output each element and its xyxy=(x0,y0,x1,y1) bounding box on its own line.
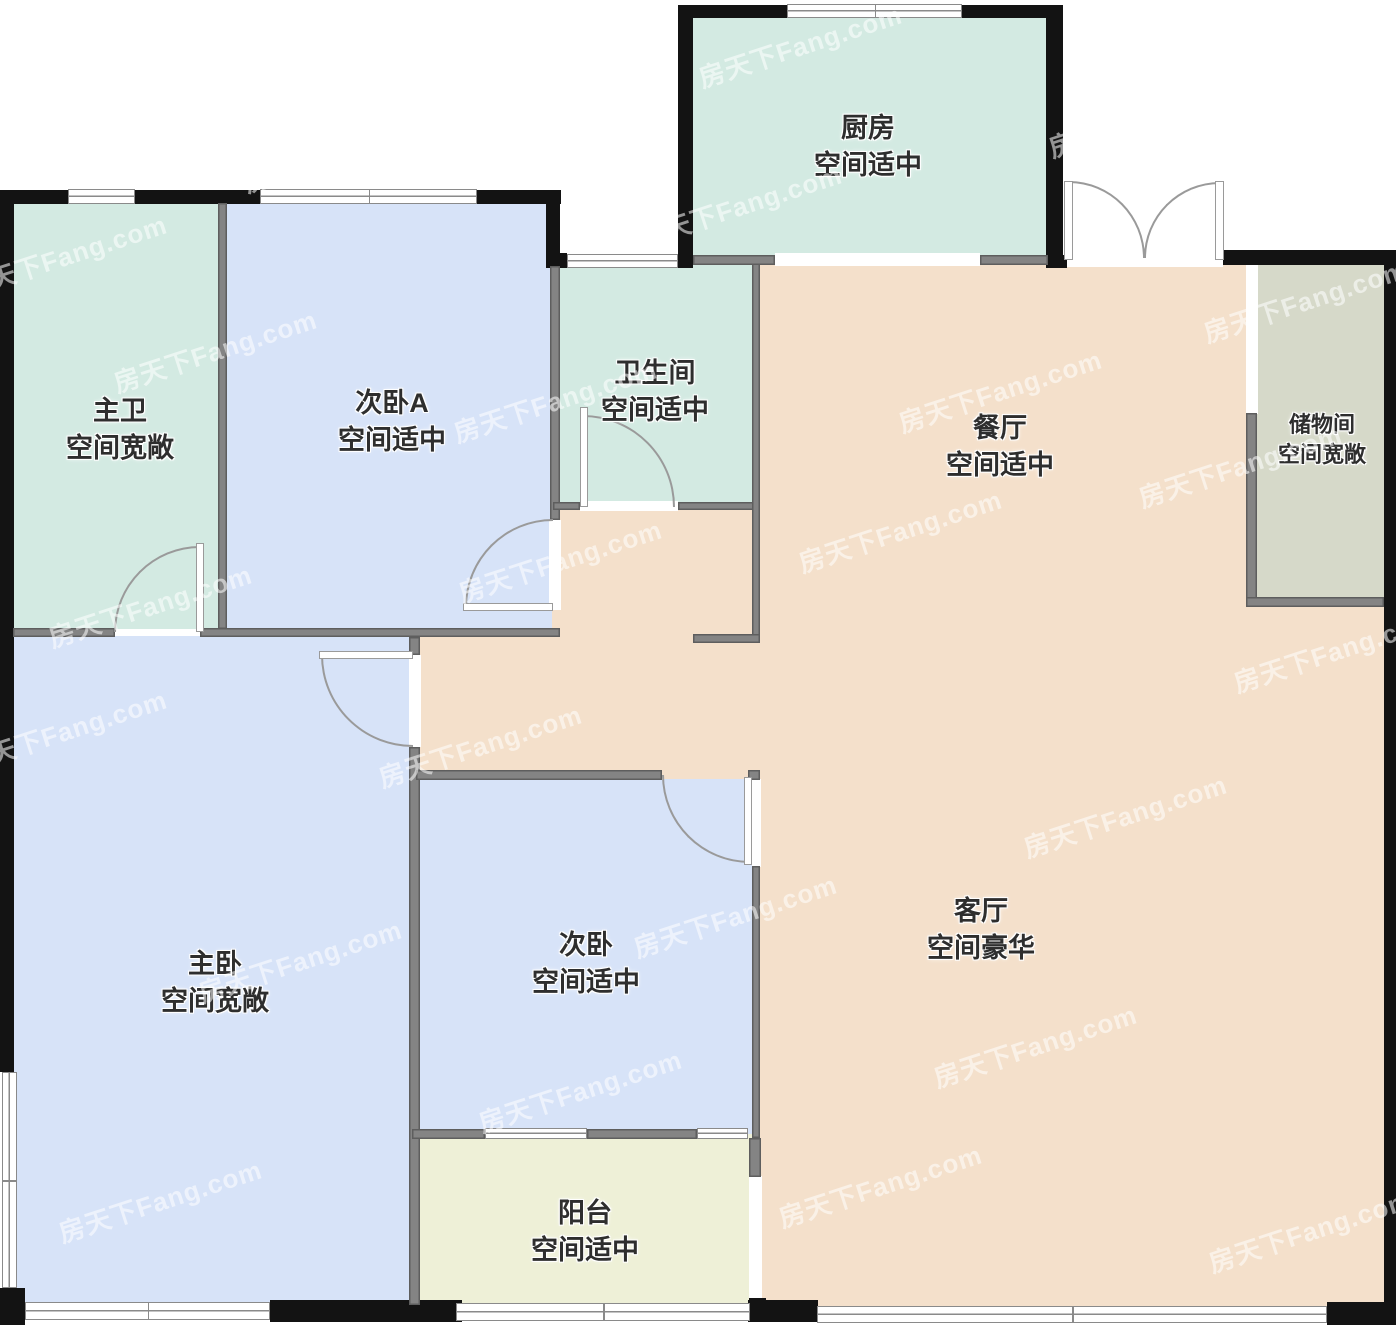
window-master-bottom xyxy=(25,1302,270,1320)
wall-block-bottom-right xyxy=(200,628,560,637)
door-leaf-master-bedroom xyxy=(319,651,413,659)
wall-kitchen-bottom-right xyxy=(980,255,1048,265)
wall-ext-top-1 xyxy=(5,190,68,204)
wall-ext-top-2 xyxy=(135,190,260,204)
room-size: 空间豪华 xyxy=(927,930,1035,967)
window-bathroom-top xyxy=(567,254,678,268)
floor-plan: 厨房 空间适中 主卫 空间宽敞 次卧A 空间适中 卫生间 空间适中 餐厅 空间适… xyxy=(0,0,1400,1325)
room-label-bedroom: 次卧 空间适中 xyxy=(532,927,640,1001)
door-arc-entry-right xyxy=(1144,182,1220,258)
opening-storage xyxy=(1246,264,1258,414)
opening-bedroom-right xyxy=(752,779,761,867)
room-label-master-bath: 主卫 空间宽敞 xyxy=(66,393,174,467)
wall-ext-left-corner xyxy=(0,1288,25,1325)
wall-balcony-right-top xyxy=(749,1138,761,1177)
wall-hall-stub xyxy=(693,634,760,643)
room-size: 空间宽敞 xyxy=(66,430,174,467)
room-size: 空间适中 xyxy=(946,447,1054,484)
window-master-left xyxy=(2,1072,17,1288)
wall-ext-left xyxy=(0,190,14,1072)
room-size: 空间适中 xyxy=(338,422,446,459)
window-balcony-bottom xyxy=(456,1303,750,1321)
window-bedroom-balcony-2 xyxy=(697,1128,748,1139)
wall-master-right xyxy=(409,747,420,1305)
wall-ext-right xyxy=(1384,250,1396,1325)
wall-kitchen-bottom-left xyxy=(693,255,775,265)
room-label-balcony: 阳台 空间适中 xyxy=(531,1195,639,1269)
wall-bedroom-balcony-1 xyxy=(412,1129,485,1139)
wall-bedroom-balcony-2 xyxy=(587,1129,697,1139)
window-masterbath-top xyxy=(68,189,135,204)
wall-ext-kitchen-top-1 xyxy=(681,5,787,18)
wall-ext-balcony-foot xyxy=(749,1298,766,1322)
door-leaf-entry-right xyxy=(1215,181,1224,260)
room-size: 空间适中 xyxy=(532,964,640,1001)
room-label-living: 客厅 空间豪华 xyxy=(927,893,1035,967)
room-name: 客厅 xyxy=(927,893,1035,930)
wall-bath-bottom-right xyxy=(678,502,760,510)
door-leaf-bathroom xyxy=(580,407,588,507)
room-size: 空间适中 xyxy=(531,1232,639,1269)
wall-bath-bottom-left xyxy=(553,502,580,510)
door-leaf-entry-left xyxy=(1064,181,1073,260)
opening-kitchen-pass xyxy=(775,253,980,266)
door-arc-entry-left xyxy=(1069,181,1145,258)
room-name: 次卧 xyxy=(532,927,640,964)
door-leaf-bedroom xyxy=(744,777,752,865)
watermark-text: 房天下Fang.com xyxy=(239,100,452,201)
window-bedrooma-top xyxy=(260,189,477,204)
room-name: 次卧A xyxy=(338,385,446,422)
watermark-text: 房天下Fang.com xyxy=(1044,65,1257,166)
room-name: 厨房 xyxy=(814,110,922,147)
wall-ext-kitchen-top-2 xyxy=(962,5,1058,18)
wall-storage-bottom xyxy=(1246,597,1384,607)
window-living-bottom xyxy=(817,1306,1327,1323)
room-label-bedroom-a: 次卧A 空间适中 xyxy=(338,385,446,459)
wall-bath-right xyxy=(752,255,760,643)
room-name: 阳台 xyxy=(531,1195,639,1232)
opening-balcony-right xyxy=(749,1176,762,1300)
wall-ext-bottom-master xyxy=(270,1300,462,1322)
